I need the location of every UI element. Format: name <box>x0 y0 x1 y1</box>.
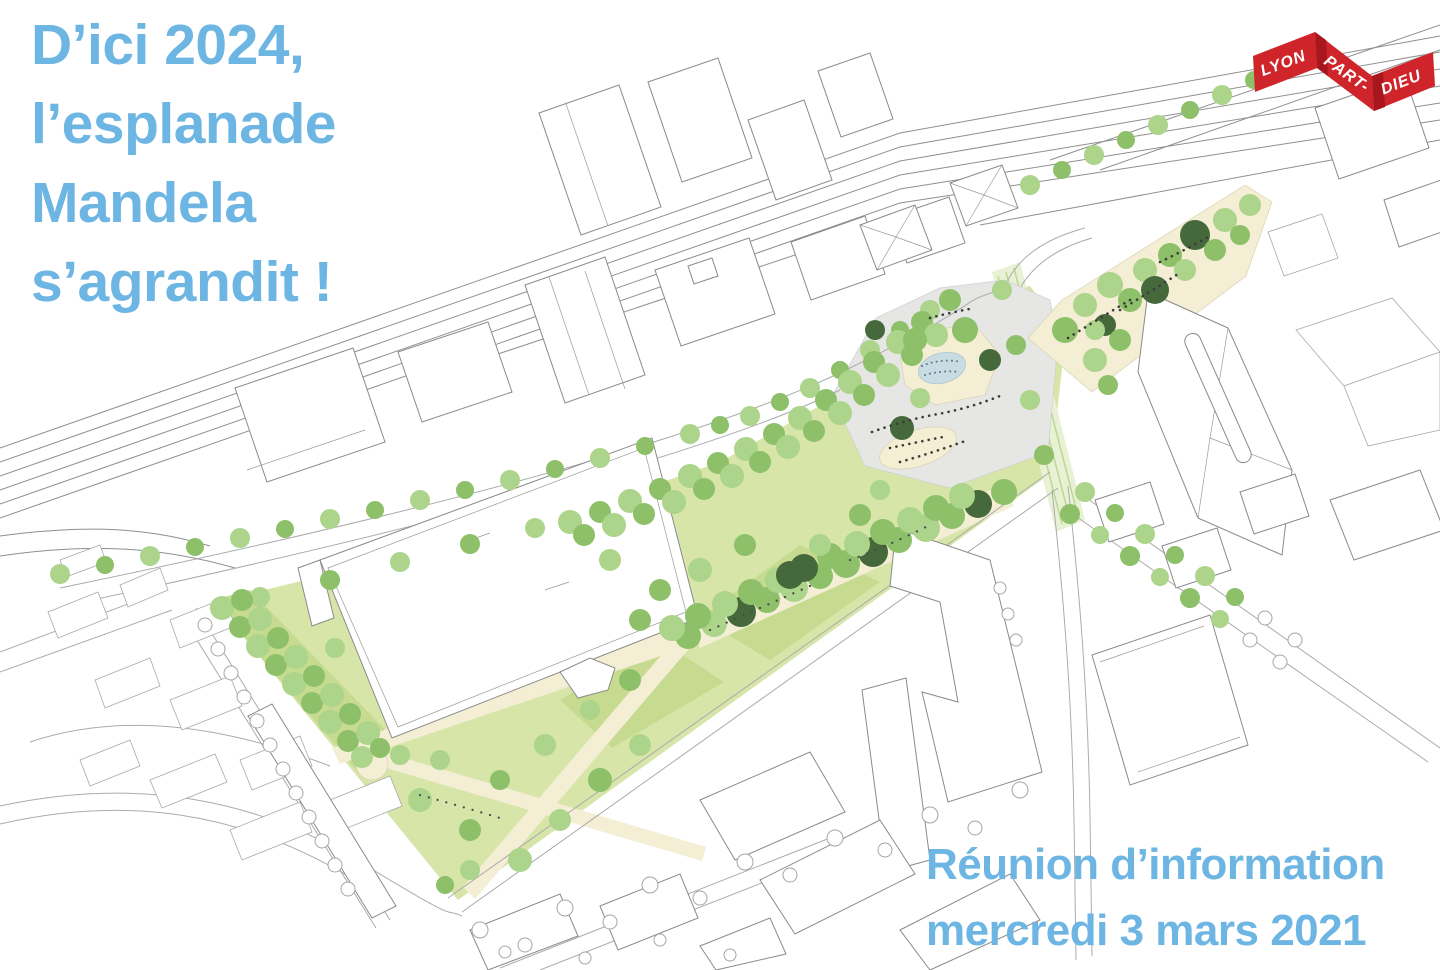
page-title: D’ici 2024, l’esplanade Mandela s’agrand… <box>31 6 336 322</box>
title-line-4: s’agrandit ! <box>31 243 336 322</box>
meeting-info: Réunion d’information mercredi 3 mars 20… <box>926 832 1385 964</box>
meeting-info-line-1: Réunion d’information <box>926 832 1385 898</box>
poster-page: LYON PART- DIEU D’ici 2024, l’esplanade … <box>0 0 1440 970</box>
title-line-3: Mandela <box>31 164 336 243</box>
title-line-2: l’esplanade <box>31 85 336 164</box>
central-plaza <box>832 280 1058 488</box>
meeting-info-line-2: mercredi 3 mars 2021 <box>926 898 1385 964</box>
title-line-1: D’ici 2024, <box>31 6 336 85</box>
